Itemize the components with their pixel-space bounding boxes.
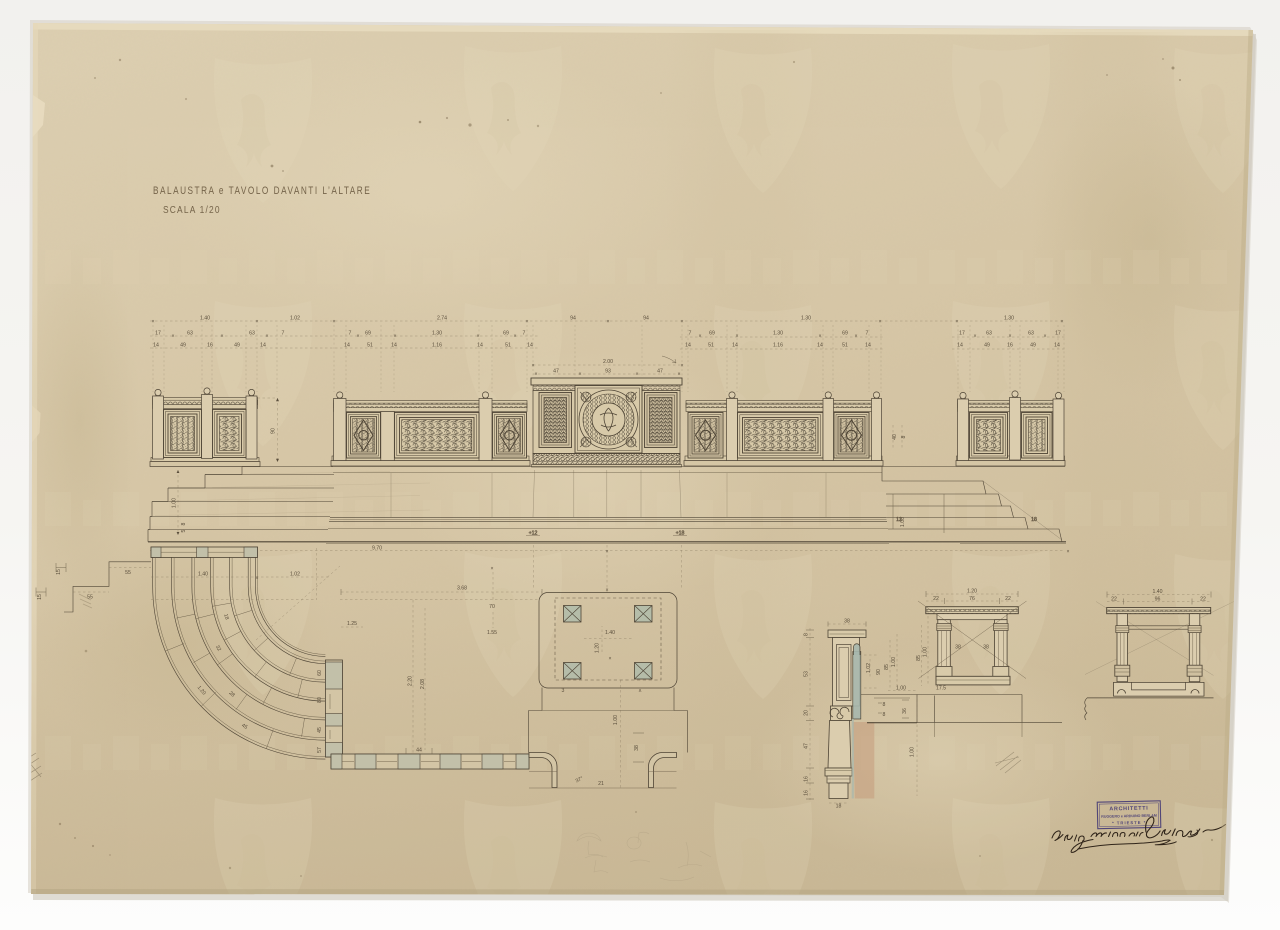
svg-text:90: 90 <box>876 669 882 675</box>
svg-text:18: 18 <box>836 804 842 810</box>
svg-text:1.40: 1.40 <box>198 572 208 578</box>
svg-text:2.08: 2.08 <box>420 679 426 689</box>
svg-text:1.30: 1.30 <box>801 316 811 322</box>
svg-text:85: 85 <box>884 664 890 670</box>
svg-text:1.00: 1.00 <box>613 715 619 725</box>
svg-text:51: 51 <box>842 343 848 349</box>
svg-text:20: 20 <box>804 710 810 716</box>
svg-text:15: 15 <box>56 569 62 575</box>
svg-text:×: × <box>698 334 701 340</box>
svg-text:70: 70 <box>489 604 495 610</box>
svg-text:×: × <box>332 319 335 325</box>
svg-text:16: 16 <box>804 790 810 796</box>
svg-text:14: 14 <box>477 343 483 349</box>
svg-text:7: 7 <box>349 331 352 337</box>
svg-text:7: 7 <box>689 331 692 337</box>
svg-text:8: 8 <box>181 522 187 525</box>
svg-text:69: 69 <box>709 331 715 337</box>
svg-text:96: 96 <box>1155 596 1161 602</box>
svg-text:38: 38 <box>844 619 850 625</box>
svg-text:9.70: 9.70 <box>372 546 382 552</box>
svg-text:49: 49 <box>180 343 186 349</box>
svg-text:×: × <box>878 319 881 325</box>
svg-text:12: 12 <box>896 517 902 523</box>
svg-text:×: × <box>608 656 611 662</box>
svg-text:63: 63 <box>187 331 193 337</box>
svg-text:×: × <box>973 334 976 340</box>
svg-text:51: 51 <box>367 343 373 349</box>
svg-text:49: 49 <box>234 343 240 349</box>
svg-text:* TRIESTE *: * TRIESTE * <box>1112 820 1146 826</box>
svg-text:14: 14 <box>817 343 823 349</box>
svg-text:53: 53 <box>804 671 810 677</box>
svg-text:76: 76 <box>969 596 975 602</box>
svg-text:SCALA 1/20: SCALA 1/20 <box>163 204 221 216</box>
svg-text:×: × <box>955 319 958 325</box>
svg-text:1.25: 1.25 <box>347 621 357 627</box>
svg-text:49: 49 <box>1030 343 1036 349</box>
svg-text:×: × <box>255 319 258 325</box>
svg-text:18: 18 <box>1031 517 1037 523</box>
svg-text:45: 45 <box>317 727 323 733</box>
svg-text:47: 47 <box>553 369 559 375</box>
svg-text:7: 7 <box>866 331 869 337</box>
svg-text:×: × <box>606 319 609 325</box>
svg-text:1.02: 1.02 <box>866 663 872 673</box>
svg-text:3: 3 <box>562 688 565 694</box>
svg-text:1.30: 1.30 <box>432 331 442 337</box>
svg-text:1.00: 1.00 <box>172 498 178 508</box>
svg-text:94: 94 <box>570 316 576 322</box>
svg-text:+18: +18 <box>676 531 685 537</box>
svg-text:69: 69 <box>842 331 848 337</box>
svg-text:14: 14 <box>865 343 871 349</box>
svg-text:×: × <box>490 566 493 572</box>
svg-text:2.20: 2.20 <box>408 676 414 686</box>
svg-text:17: 17 <box>155 331 161 337</box>
svg-text:1.30: 1.30 <box>1004 316 1014 322</box>
svg-text:69: 69 <box>365 331 371 337</box>
svg-text:ʌ: ʌ <box>639 688 642 694</box>
svg-text:1.40: 1.40 <box>605 630 615 636</box>
svg-text:×: × <box>534 372 537 378</box>
svg-text:1.00: 1.00 <box>896 686 906 692</box>
svg-text:14: 14 <box>344 343 350 349</box>
svg-text:ARCHITETTI: ARCHITETTI <box>1109 806 1148 813</box>
svg-text:93: 93 <box>605 369 611 375</box>
svg-text:38: 38 <box>955 645 961 651</box>
svg-text:21: 21 <box>598 781 604 787</box>
svg-text:14: 14 <box>527 343 533 349</box>
svg-text:×: × <box>356 334 359 340</box>
svg-text:60: 60 <box>317 670 323 676</box>
svg-text:5: 5 <box>181 529 187 532</box>
svg-text:1.55: 1.55 <box>487 630 497 636</box>
svg-text:14: 14 <box>153 343 159 349</box>
svg-text:×: × <box>1043 334 1046 340</box>
svg-text:BALAUSTRA e TAVOLO DAVANTI L’A: BALAUSTRA e TAVOLO DAVANTI L’ALTARE <box>153 185 371 197</box>
svg-text:1.00: 1.00 <box>891 657 897 667</box>
svg-text:22: 22 <box>1200 596 1206 602</box>
svg-text:8: 8 <box>883 712 886 718</box>
svg-text:×: × <box>680 319 683 325</box>
svg-text:15: 15 <box>37 594 43 600</box>
svg-text:1.20: 1.20 <box>967 589 977 595</box>
svg-text:×: × <box>854 334 857 340</box>
svg-text:1.20: 1.20 <box>595 643 601 653</box>
svg-text:7: 7 <box>523 331 526 337</box>
svg-text:85: 85 <box>916 655 922 661</box>
svg-text:+12: +12 <box>529 531 538 537</box>
svg-text:17.5: 17.5 <box>936 686 946 692</box>
svg-text:×: × <box>635 372 638 378</box>
svg-text:44: 44 <box>416 748 422 754</box>
svg-text:1.02: 1.02 <box>290 572 300 578</box>
svg-text:×: × <box>171 334 174 340</box>
svg-text:2.74: 2.74 <box>437 316 447 322</box>
svg-text:22: 22 <box>1111 596 1117 602</box>
svg-text:80: 80 <box>317 697 323 703</box>
svg-text:69: 69 <box>503 331 509 337</box>
svg-text:1.40: 1.40 <box>200 316 210 322</box>
svg-text:57: 57 <box>317 747 323 753</box>
svg-text:7: 7 <box>282 331 285 337</box>
svg-text:38: 38 <box>634 745 640 751</box>
svg-text:×: × <box>525 319 528 325</box>
svg-text:×: × <box>220 334 223 340</box>
svg-text:22: 22 <box>933 596 939 602</box>
svg-text:51: 51 <box>505 343 511 349</box>
svg-text:×: × <box>265 334 268 340</box>
svg-text:14: 14 <box>260 343 266 349</box>
svg-text:×: × <box>680 363 683 369</box>
svg-text:×: × <box>255 576 258 582</box>
svg-text:1.00: 1.00 <box>910 747 916 757</box>
svg-text:63: 63 <box>249 331 255 337</box>
svg-text:47: 47 <box>804 743 810 749</box>
svg-text:17: 17 <box>959 331 965 337</box>
svg-text:38: 38 <box>983 645 989 651</box>
svg-text:49: 49 <box>984 343 990 349</box>
svg-text:×: × <box>531 363 534 369</box>
svg-text:1.40: 1.40 <box>1152 589 1162 595</box>
svg-text:8: 8 <box>883 702 886 708</box>
svg-text:1.30: 1.30 <box>773 331 783 337</box>
svg-text:36: 36 <box>902 708 908 714</box>
svg-text:63: 63 <box>1028 331 1034 337</box>
svg-text:94: 94 <box>643 316 649 322</box>
svg-text:55: 55 <box>125 570 131 576</box>
svg-text:8: 8 <box>804 633 810 636</box>
svg-text:×: × <box>513 334 516 340</box>
svg-text:×: × <box>677 372 680 378</box>
svg-text:1.16: 1.16 <box>773 343 783 349</box>
svg-text:16: 16 <box>804 776 810 782</box>
svg-text:2.00: 2.00 <box>603 359 613 365</box>
svg-text:51: 51 <box>708 343 714 349</box>
svg-text:1.02: 1.02 <box>290 316 300 322</box>
svg-text:90: 90 <box>271 428 277 434</box>
svg-text:×: × <box>818 334 821 340</box>
svg-text:×: × <box>578 372 581 378</box>
svg-text:×: × <box>1066 549 1069 555</box>
svg-text:22: 22 <box>1005 596 1011 602</box>
svg-text:×: × <box>1060 319 1063 325</box>
svg-text:47: 47 <box>657 369 663 375</box>
svg-text:14: 14 <box>1054 343 1060 349</box>
svg-text:1.16: 1.16 <box>432 343 442 349</box>
svg-text:×: × <box>151 319 154 325</box>
svg-text:1.00: 1.00 <box>923 647 929 657</box>
svg-text:63: 63 <box>986 331 992 337</box>
svg-text:3.68: 3.68 <box>457 586 467 592</box>
